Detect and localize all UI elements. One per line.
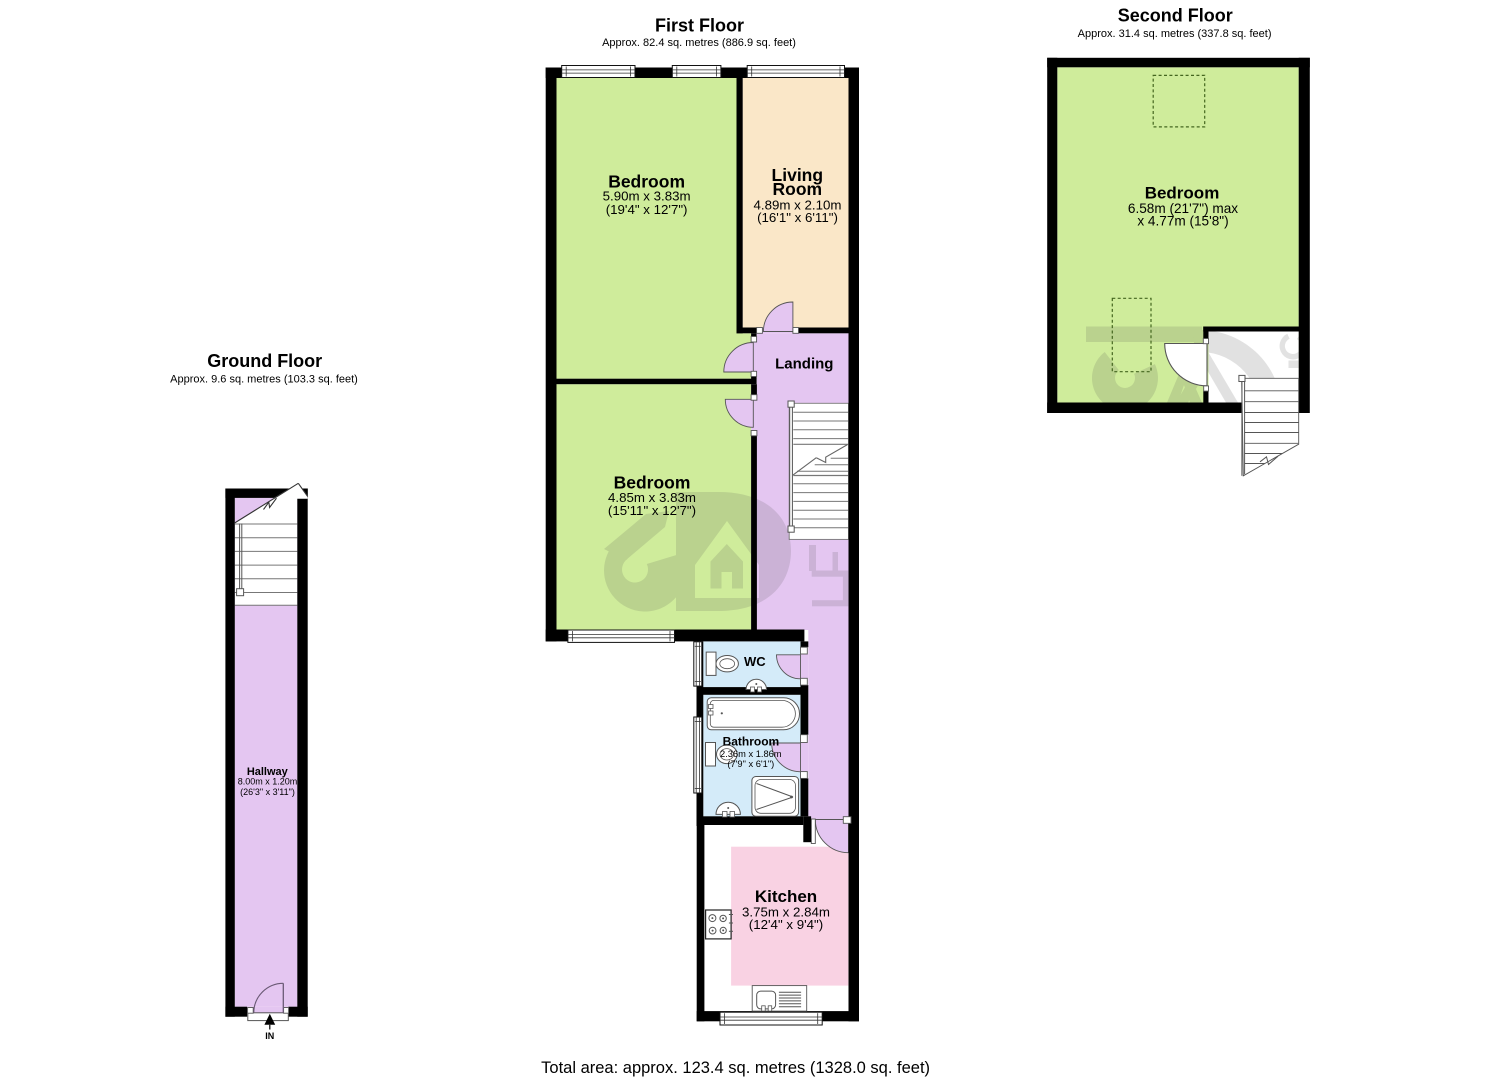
svg-text:Second Floor: Second Floor (1118, 5, 1233, 25)
svg-text:IN: IN (265, 1031, 274, 1041)
svg-text:Room: Room (773, 179, 823, 199)
svg-text:2.36m x 1.86m: 2.36m x 1.86m (720, 749, 782, 759)
svg-text:(7'9" x 6'1"): (7'9" x 6'1") (727, 759, 774, 769)
svg-text:(12'4" x 9'4"): (12'4" x 9'4") (749, 917, 823, 932)
svg-text:(16'1" x 6'11"): (16'1" x 6'11") (757, 210, 838, 225)
svg-text:WC: WC (744, 654, 766, 669)
svg-text:Ground Floor: Ground Floor (207, 351, 322, 371)
svg-text:(19'4" x 12'7"): (19'4" x 12'7") (606, 202, 688, 217)
svg-text:Approx. 9.6 sq. metres (103.3: Approx. 9.6 sq. metres (103.3 sq. feet) (170, 374, 358, 386)
svg-text:(26'3" x 3'11"): (26'3" x 3'11") (240, 787, 295, 797)
svg-text:Landing: Landing (775, 356, 833, 373)
svg-text:Total area: approx. 123.4 sq.: Total area: approx. 123.4 sq. metres (13… (541, 1059, 930, 1077)
svg-text:Bedroom: Bedroom (1145, 184, 1220, 203)
svg-text:Kitchen: Kitchen (755, 887, 817, 906)
svg-text:First Floor: First Floor (655, 16, 744, 36)
svg-text:(15'11" x 12'7"): (15'11" x 12'7") (608, 503, 696, 518)
svg-text:Approx. 82.4 sq. metres (886.9: Approx. 82.4 sq. metres (886.9 sq. feet) (602, 37, 796, 49)
svg-text:Bathroom: Bathroom (723, 735, 780, 749)
svg-text:8.00m x 1.20m: 8.00m x 1.20m (238, 777, 298, 787)
svg-text:Approx. 31.4 sq. metres (337.8: Approx. 31.4 sq. metres (337.8 sq. feet) (1078, 28, 1272, 40)
svg-text:x 4.77m (15'8"): x 4.77m (15'8") (1137, 213, 1228, 228)
